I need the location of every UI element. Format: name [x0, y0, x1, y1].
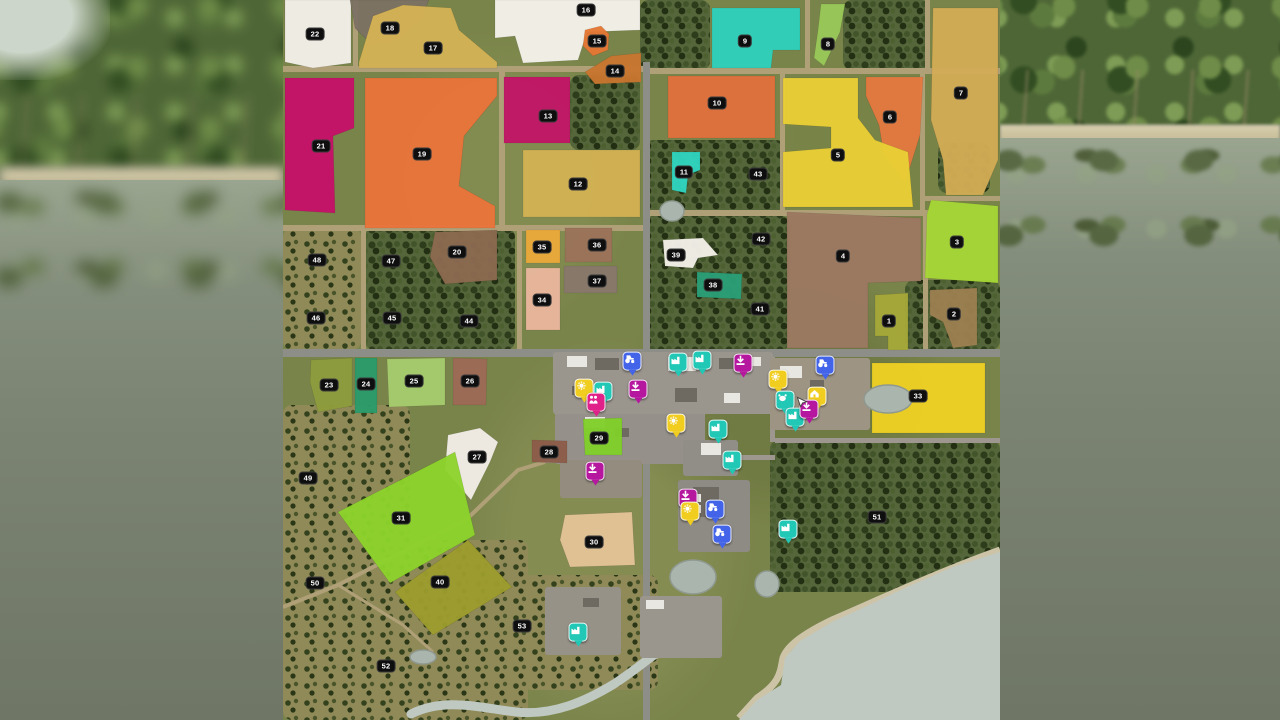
- download-arrow-icon: [587, 463, 599, 475]
- dealer-point-icon[interactable]: [706, 500, 725, 519]
- tractor-icon: [624, 353, 636, 365]
- field-label-39: 39: [667, 249, 686, 262]
- field-label-12: 12: [569, 178, 588, 191]
- lake-water: [1000, 138, 1280, 720]
- production-point-icon[interactable]: [723, 451, 742, 470]
- tree-reflections: [1000, 138, 1280, 248]
- field-label-30: 30: [585, 536, 604, 549]
- download-arrow-icon: [680, 490, 692, 502]
- field-label-15: 15: [588, 35, 607, 48]
- building: [583, 598, 599, 607]
- field-label-25: 25: [405, 375, 424, 388]
- dealer-point-icon[interactable]: [623, 352, 642, 371]
- factory-icon: [570, 624, 582, 636]
- download-arrow-icon: [735, 355, 747, 367]
- field-label-16: 16: [577, 4, 596, 17]
- field-label-22: 22: [306, 28, 325, 41]
- field-label-31: 31: [392, 512, 411, 525]
- building: [701, 443, 721, 455]
- field-label-36: 36: [588, 239, 607, 252]
- pin-pointer: [821, 374, 829, 380]
- store-point-icon[interactable]: [769, 370, 788, 389]
- sell-point-icon[interactable]: [629, 380, 648, 399]
- field-label-8: 8: [821, 38, 835, 51]
- tractor-icon: [707, 501, 719, 513]
- factory-icon: [710, 421, 722, 433]
- pin-pointer: [718, 543, 726, 549]
- production-point-icon[interactable]: [669, 353, 688, 372]
- pin-pointer: [634, 398, 642, 404]
- production-point-icon[interactable]: [693, 351, 712, 370]
- gear-icon: [770, 371, 782, 383]
- pin-pointer: [711, 518, 719, 524]
- field-label-40: 40: [431, 576, 450, 589]
- sell-point-icon[interactable]: [734, 354, 753, 373]
- field-label-3: 3: [950, 236, 964, 249]
- field-label-11: 11: [675, 166, 693, 179]
- pin-pointer: [686, 520, 694, 526]
- factory-icon: [670, 354, 682, 366]
- field-label-46: 46: [307, 312, 326, 325]
- gear-icon: [576, 380, 588, 392]
- store-point-icon[interactable]: [681, 502, 700, 521]
- field-label-50: 50: [306, 577, 325, 590]
- store-point-icon[interactable]: [667, 414, 686, 433]
- production-point-icon[interactable]: [709, 420, 728, 439]
- cow-icon: [777, 392, 789, 404]
- field-label-24: 24: [357, 378, 376, 391]
- field-label-37: 37: [588, 275, 607, 288]
- gear-icon: [682, 503, 694, 515]
- field-8[interactable]: [814, 4, 845, 66]
- field-label-7: 7: [954, 87, 968, 100]
- family-point-icon[interactable]: [587, 393, 606, 412]
- tractor-icon: [714, 526, 726, 538]
- pin-pointer: [714, 438, 722, 444]
- map-overview: 2218171615142119131298710651134393812203…: [283, 0, 1000, 720]
- field-label-34: 34: [533, 294, 552, 307]
- lake-water: [0, 180, 283, 720]
- factory-icon: [787, 409, 799, 421]
- sell-point-icon[interactable]: [586, 462, 605, 481]
- sky-haze: [0, 0, 110, 80]
- pin-pointer: [574, 641, 582, 647]
- field-label-13: 13: [539, 110, 558, 123]
- building: [675, 388, 697, 402]
- people-icon: [588, 394, 600, 406]
- field-label-9: 9: [738, 35, 752, 48]
- field-label-23: 23: [320, 379, 339, 392]
- field-label-35: 35: [533, 241, 552, 254]
- map-canvas: [283, 0, 1000, 720]
- pin-pointer: [739, 372, 747, 378]
- factory-icon: [780, 521, 792, 533]
- field-label-18: 18: [381, 22, 400, 35]
- pin-pointer: [672, 432, 680, 438]
- download-arrow-icon: [630, 381, 642, 393]
- field-label-20: 20: [448, 246, 467, 259]
- production-point-icon[interactable]: [779, 520, 798, 539]
- pin-pointer: [728, 469, 736, 475]
- pin-pointer: [805, 418, 813, 424]
- field-label-49: 49: [299, 472, 318, 485]
- game-screen: 2218171615142119131298710651134393812203…: [0, 0, 1280, 720]
- field-label-42: 42: [752, 233, 771, 246]
- pin-pointer: [791, 426, 799, 432]
- tractor-icon: [817, 357, 829, 369]
- field-label-5: 5: [831, 149, 845, 162]
- field-label-4: 4: [836, 250, 850, 263]
- field-label-29: 29: [590, 432, 609, 445]
- gear-icon: [668, 415, 680, 427]
- field-17[interactable]: [359, 5, 497, 68]
- pin-pointer: [592, 411, 600, 417]
- field-label-21: 21: [312, 140, 331, 153]
- field-label-38: 38: [704, 279, 723, 292]
- dealer-point-icon[interactable]: [713, 525, 732, 544]
- field-label-6: 6: [883, 111, 897, 124]
- field-label-45: 45: [383, 312, 402, 325]
- field-label-41: 41: [751, 303, 770, 316]
- production-point-icon[interactable]: [569, 623, 588, 642]
- building: [646, 600, 664, 609]
- field-label-19: 19: [413, 148, 432, 161]
- tree-reflections: [0, 180, 283, 290]
- field-label-43: 43: [749, 168, 768, 181]
- pin-pointer: [674, 371, 682, 377]
- building: [567, 356, 587, 367]
- field-label-26: 26: [461, 375, 480, 388]
- field-label-33: 33: [909, 390, 928, 403]
- field-label-2: 2: [947, 308, 961, 321]
- field-label-47: 47: [382, 255, 401, 268]
- factory-icon: [694, 352, 706, 364]
- field-13[interactable]: [504, 77, 570, 143]
- pin-pointer: [591, 480, 599, 486]
- field-label-28: 28: [540, 446, 559, 459]
- field-label-51: 51: [868, 511, 887, 524]
- field-label-10: 10: [708, 97, 727, 110]
- pin-pointer: [628, 370, 636, 376]
- background-scenery-left: [0, 0, 283, 720]
- field-9[interactable]: [712, 8, 800, 68]
- field-16[interactable]: [495, 0, 640, 63]
- field-label-52: 52: [377, 660, 396, 673]
- pin-pointer: [784, 538, 792, 544]
- field-label-17: 17: [424, 42, 443, 55]
- house-icon: [809, 388, 821, 400]
- field-label-1: 1: [882, 315, 896, 328]
- pin-pointer: [698, 369, 706, 375]
- field-label-53: 53: [513, 620, 532, 633]
- field-label-14: 14: [606, 65, 625, 78]
- building: [595, 358, 619, 370]
- field-label-48: 48: [308, 254, 327, 267]
- dealer-point-icon[interactable]: [816, 356, 835, 375]
- field-label-44: 44: [460, 315, 479, 328]
- building: [724, 393, 740, 403]
- factory-icon: [724, 452, 736, 464]
- background-scenery-right: [1000, 0, 1280, 720]
- field-label-27: 27: [468, 451, 487, 464]
